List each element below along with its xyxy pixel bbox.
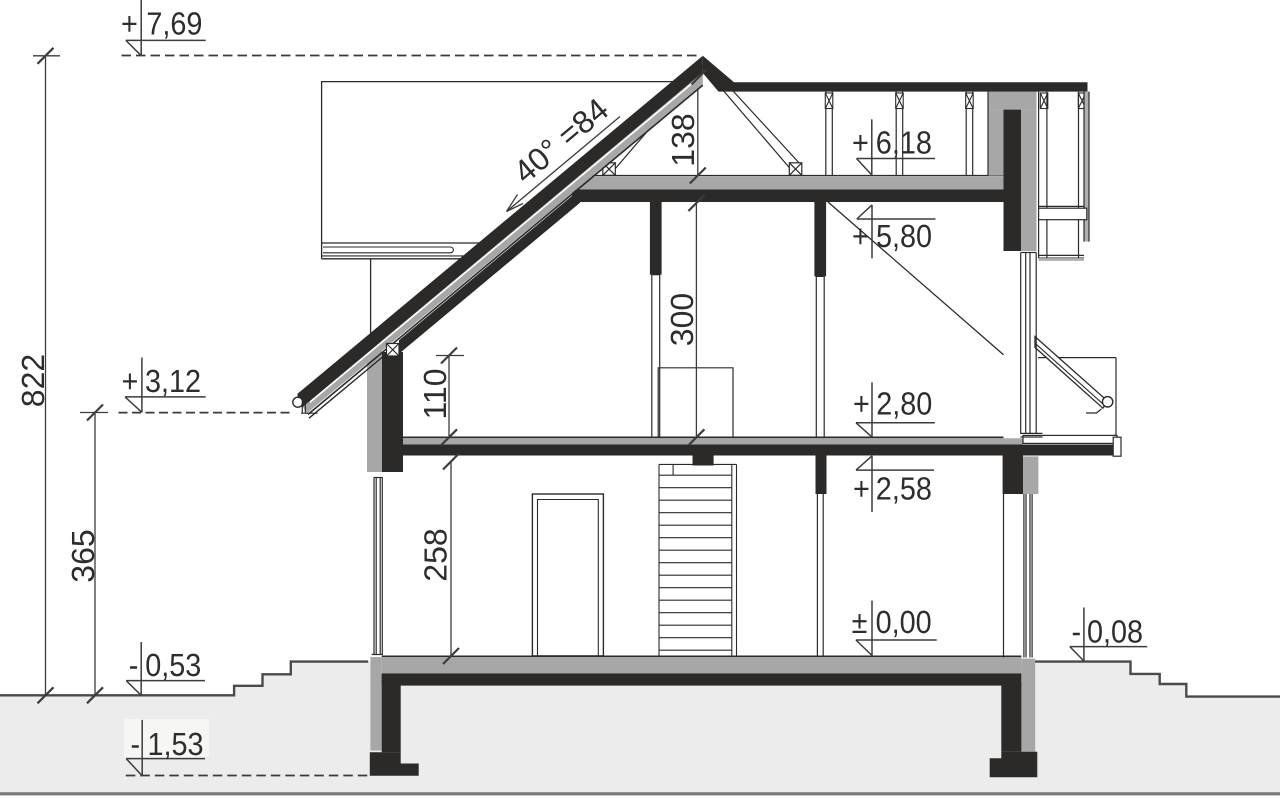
svg-text:-: -	[129, 647, 139, 683]
svg-text:0,00: 0,00	[876, 604, 932, 640]
svg-text:+: +	[853, 471, 870, 507]
svg-text:6,18: 6,18	[876, 125, 932, 161]
svg-text:138: 138	[665, 113, 701, 166]
svg-text:2,58: 2,58	[876, 471, 932, 507]
svg-text:-: -	[131, 726, 141, 762]
svg-text:-: -	[1072, 614, 1082, 650]
svg-text:+: +	[852, 218, 869, 254]
svg-text:5,80: 5,80	[876, 218, 932, 254]
svg-text:0,08: 0,08	[1087, 614, 1143, 650]
svg-text:258: 258	[418, 528, 454, 581]
svg-text:+: +	[852, 125, 869, 161]
svg-text:+: +	[853, 385, 870, 421]
svg-text:±: ±	[852, 604, 868, 640]
svg-text:2,80: 2,80	[876, 385, 932, 421]
svg-text:1,53: 1,53	[148, 726, 204, 762]
svg-text:300: 300	[664, 293, 700, 346]
svg-text:+: +	[121, 6, 138, 42]
svg-text:0,53: 0,53	[145, 647, 201, 683]
svg-text:7,69: 7,69	[146, 6, 202, 42]
svg-text:3,12: 3,12	[145, 363, 201, 399]
svg-text:110: 110	[417, 368, 453, 419]
svg-text:365: 365	[65, 529, 101, 582]
svg-text:822: 822	[15, 354, 51, 407]
svg-text:+: +	[122, 363, 139, 399]
